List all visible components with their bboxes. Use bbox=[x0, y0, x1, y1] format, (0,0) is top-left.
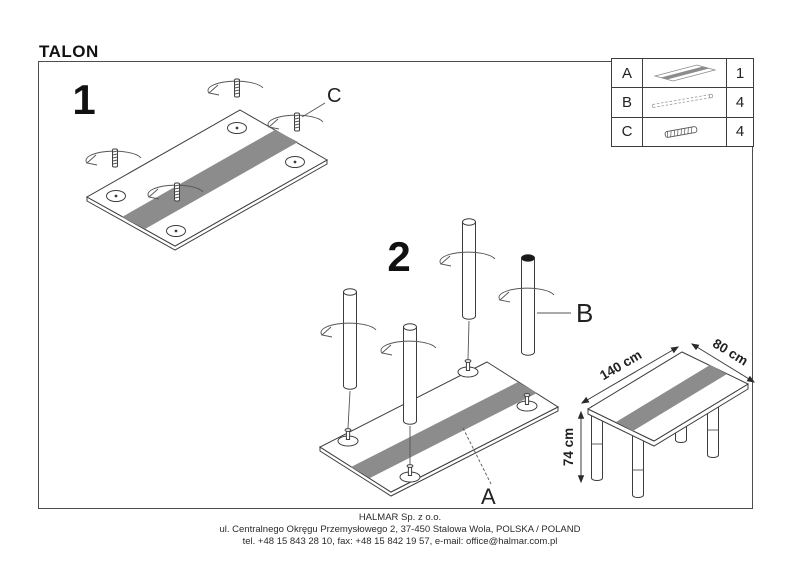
table-leg bbox=[404, 324, 417, 424]
part-letter: C bbox=[612, 118, 643, 146]
table-leg bbox=[463, 219, 476, 319]
label-c-leader bbox=[302, 103, 325, 117]
parts-table: A 1 B 4 C bbox=[611, 58, 754, 147]
screw-icon bbox=[113, 149, 118, 167]
part-letter: B bbox=[612, 88, 643, 116]
step2-number: 2 bbox=[387, 233, 410, 280]
screw-hole bbox=[107, 191, 126, 202]
screw-icon bbox=[175, 183, 180, 201]
part-qty: 4 bbox=[727, 118, 753, 146]
screw-hole bbox=[167, 226, 186, 237]
length-label: 140 cm bbox=[597, 347, 644, 383]
label-c: C bbox=[327, 85, 341, 107]
tabletop-icon bbox=[643, 59, 727, 87]
screw-hole bbox=[228, 123, 247, 134]
leg-foot-cap bbox=[522, 255, 535, 261]
screw-icon bbox=[295, 113, 300, 131]
footer: HALMAR Sp. z o.o. ul. Centralnego Okręgu… bbox=[0, 512, 800, 548]
depth-label: 80 cm bbox=[710, 336, 750, 369]
footer-address: ul. Centralnego Okręgu Przemysłowego 2, … bbox=[0, 524, 800, 536]
leg-mount bbox=[458, 360, 478, 377]
parts-table-row: C 4 bbox=[612, 118, 753, 146]
assembled-table-diagram: 140 cm 80 cm 74 cm bbox=[561, 336, 754, 498]
step2-diagram: 2 bbox=[320, 219, 593, 509]
table-leg bbox=[344, 289, 357, 389]
table-leg bbox=[522, 255, 535, 355]
parts-table-row: B 4 bbox=[612, 88, 753, 117]
label-a: A bbox=[481, 484, 496, 509]
dimension-height: 74 cm bbox=[561, 412, 581, 482]
step1-number: 1 bbox=[72, 76, 95, 123]
label-b: B bbox=[576, 298, 593, 328]
part-qty: 1 bbox=[727, 59, 753, 87]
instruction-sheet: TALON bbox=[0, 0, 800, 566]
footer-contact: tel. +48 15 843 28 10, fax: +48 15 842 1… bbox=[0, 536, 800, 548]
part-qty: 4 bbox=[727, 88, 753, 116]
step1-diagram: 1 C bbox=[72, 76, 341, 250]
screw-icon bbox=[235, 79, 240, 97]
step1-tabletop bbox=[87, 110, 327, 250]
part-letter: A bbox=[612, 59, 643, 87]
screw-hole bbox=[286, 157, 305, 168]
leg-icon bbox=[643, 88, 727, 116]
height-label: 74 cm bbox=[561, 428, 576, 466]
parts-table-row: A 1 bbox=[612, 59, 753, 88]
footer-company: HALMAR Sp. z o.o. bbox=[0, 512, 800, 524]
screw-icon bbox=[643, 118, 727, 146]
